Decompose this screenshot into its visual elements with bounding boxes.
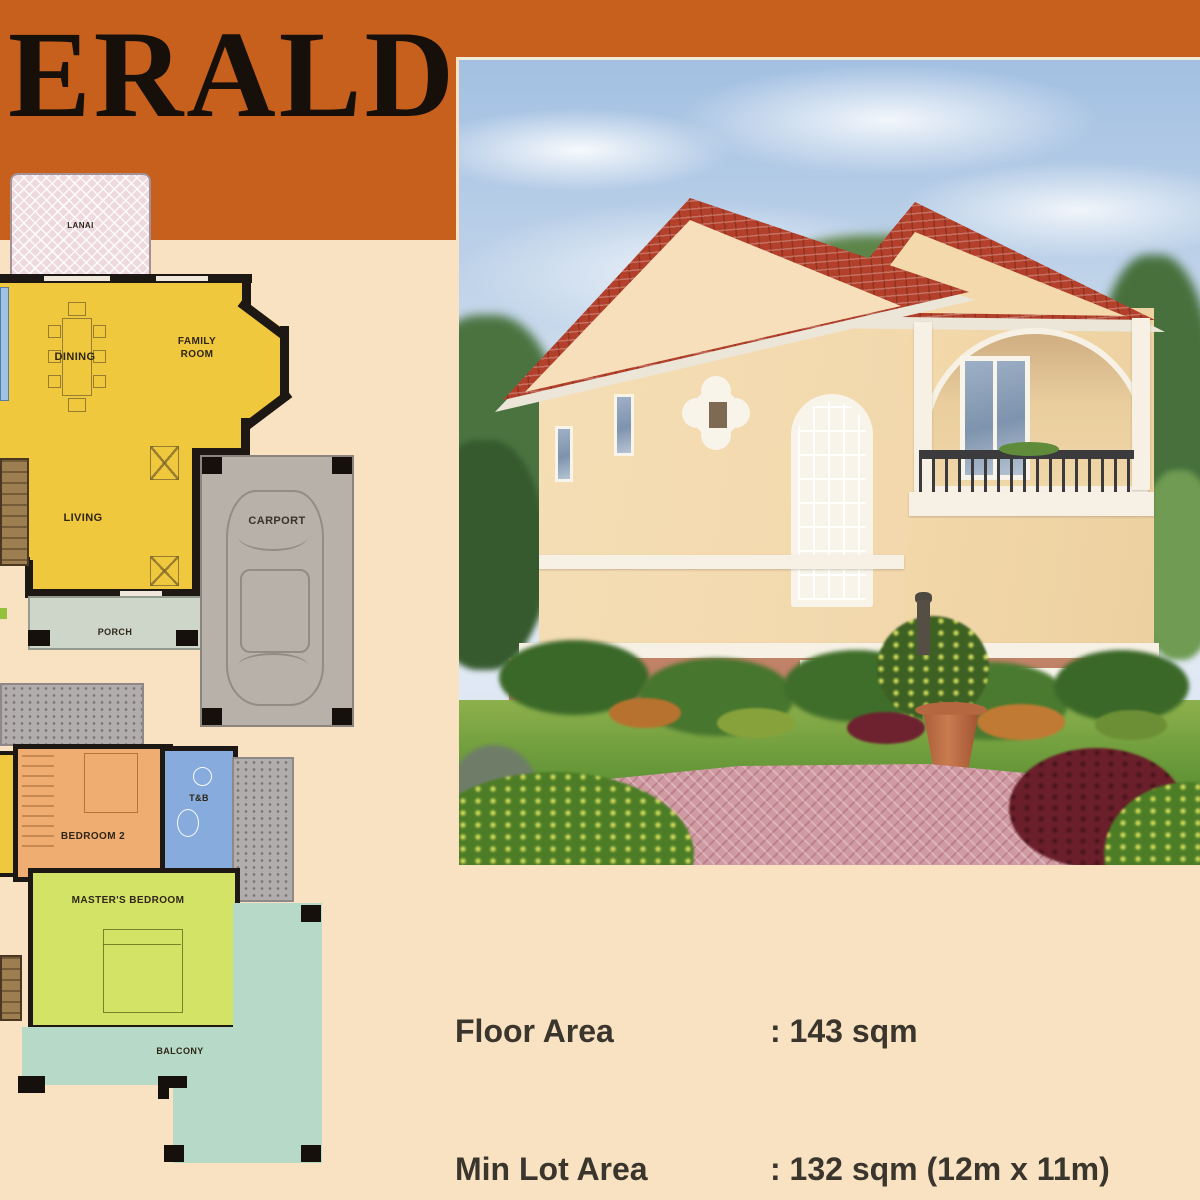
arched-window [791,394,873,607]
bed [84,753,138,813]
roof-deck-hatch [0,683,144,746]
window [555,426,573,482]
pilaster [1132,318,1150,490]
stairs [0,458,29,566]
room-label: CARPORT [202,515,352,529]
kitchen-fixture [150,556,179,586]
plan-wall-stub [158,1076,169,1099]
plan-corner-post [332,457,352,474]
trim-band [539,555,904,569]
window-glass [617,397,631,453]
quatrefoil-window [682,376,750,452]
plan-corner-post [164,1145,184,1162]
spec-value: : 143 sqm [770,1013,918,1049]
room-label: DINING [30,351,120,365]
flower-bed [977,704,1065,740]
wall-bay [280,326,289,400]
plan-corner-post [28,630,50,646]
window-marker [0,287,9,401]
spec-row: Floor Area: 143 sqm [455,1008,1200,1054]
railing-balusters [919,450,1134,494]
room-toilet-bath: T&B [160,746,238,884]
room-bedroom-2: BEDROOM 2 [13,744,173,882]
room-carport: CARPORT [200,455,354,727]
chair [48,375,61,388]
chair [93,325,106,338]
plant-marker [0,608,7,619]
house-photo [459,57,1200,865]
flower-bed [717,708,795,738]
flower-bed [1095,710,1167,740]
spec-label: Floor Area [455,1008,770,1054]
plan-corner-post [301,905,321,922]
room-label: MASTER'S BEDROOM [63,895,193,908]
room-label: PORCH [30,627,200,638]
room-label: FAMILY ROOM [168,336,226,361]
kitchen-fixture [150,446,179,480]
chair [93,375,106,388]
car-rear-window [238,653,308,679]
spec-row: Min Lot Area: 132 sqm (12m x 11m) [455,1146,1200,1192]
room-lanai: LANAI [10,173,151,282]
door-opening [156,276,208,281]
quatrefoil-glass [707,400,729,430]
room-label: BALCONY [125,1046,235,1057]
wall [192,448,200,598]
railing-planter [999,442,1059,456]
car-roof [240,569,310,653]
spec-label: Min Lot Area [455,1146,770,1192]
plan-corner-post [301,1145,321,1162]
lamp-post [917,600,930,655]
chair [68,302,86,316]
spec-value: : 132 sqm (12m x 11m) [770,1151,1110,1187]
plan-corner-post [18,1076,45,1093]
flower-bed [609,698,681,728]
window [614,394,634,456]
plan-corner-post [176,630,198,646]
room-label: T&B [165,793,233,804]
plan-corner-post [202,457,222,474]
flyer-page: ERALD LANAI [0,0,1200,1200]
sink [193,767,212,786]
chair [48,325,61,338]
roof-deck-hatch [232,757,294,902]
stairs [0,955,22,1021]
room-label: LANAI [12,221,149,231]
window-glass [558,429,570,479]
balustrade-band [909,492,1154,516]
room-masters-bedroom: MASTER'S BEDROOM [28,868,240,1030]
plan-corner-post [332,708,352,725]
door-opening [44,276,110,281]
toilet [177,809,199,837]
room-label: BEDROOM 2 [18,831,168,844]
bed-pillow-line [103,929,181,945]
plan-corner-post [202,708,222,725]
arched-window-glass [798,401,866,600]
specs-text: Floor Area: 143 sqm Min Lot Area: 132 sq… [455,916,1200,1200]
chair [68,398,86,412]
wall [0,274,252,283]
page-title: ERALD [8,10,457,140]
room-label: LIVING [38,512,128,526]
